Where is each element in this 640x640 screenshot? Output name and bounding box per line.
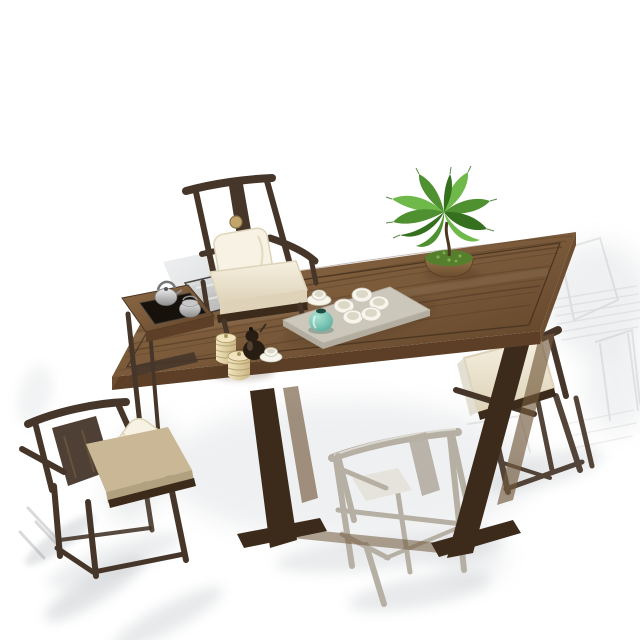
fern-fronds: [386, 166, 497, 247]
chair-crest-rail: [186, 178, 272, 191]
kettle-lid-knob: [164, 287, 168, 291]
scene-illustration: [0, 0, 640, 640]
chair-armrest-right: [270, 238, 315, 261]
splat-medallion: [230, 216, 242, 228]
teapot-lid: [316, 309, 326, 314]
teacup: [343, 310, 363, 324]
teacup: [361, 307, 381, 321]
wash-stroke: [107, 577, 229, 640]
silver-pot: [180, 296, 201, 317]
product-photo-stage: [0, 0, 640, 640]
teacup: [352, 288, 372, 302]
teapot-highlight: [247, 341, 253, 351]
